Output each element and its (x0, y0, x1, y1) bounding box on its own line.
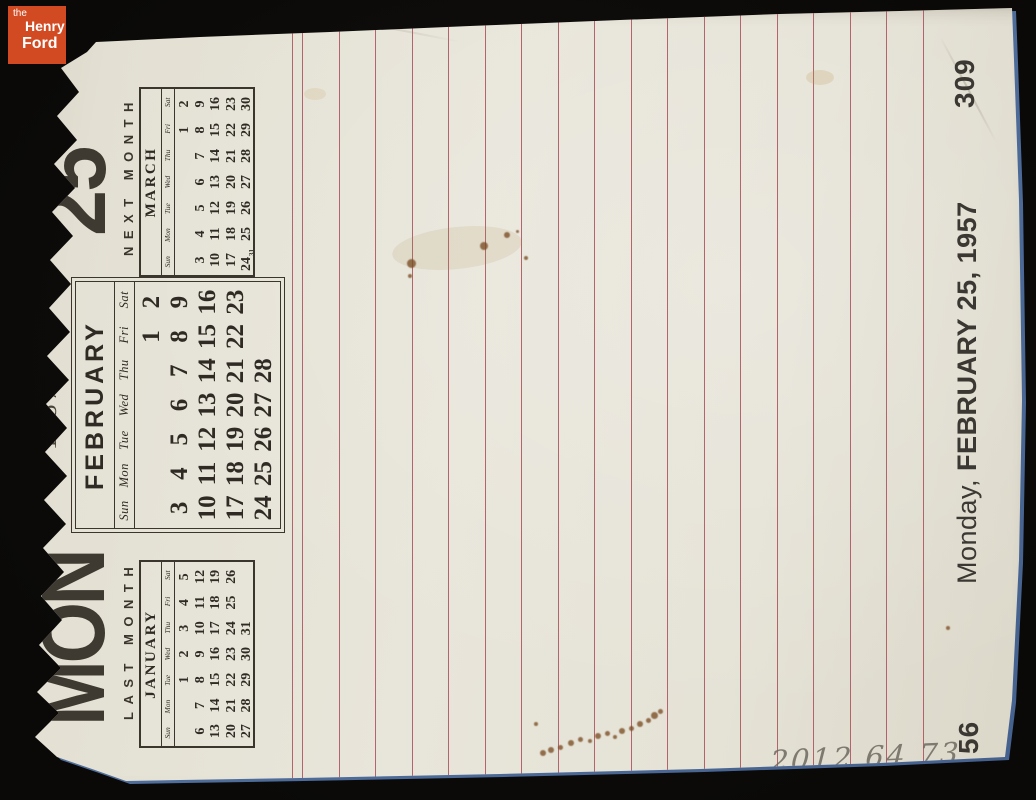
stain-speck (524, 256, 528, 260)
day-cell-overflow: 31 (248, 249, 255, 256)
day-cell: 21 (222, 354, 250, 388)
stain-speck (480, 242, 488, 250)
day-cell: 28 (239, 143, 255, 169)
month-title: JANUARY (141, 562, 161, 746)
weekday-header-row: SunMonTueWedThuFriSat (161, 562, 175, 746)
ruled-line (302, 0, 303, 800)
weekday-abbrev: Sun (115, 493, 134, 528)
day-cell: 1 (138, 319, 166, 353)
day-cell: 18 (222, 456, 250, 490)
day-cell: 27 (250, 388, 278, 422)
day-cell: 7 (193, 143, 209, 169)
day-cell (138, 354, 166, 388)
weekday-abbrev: Tue (162, 195, 174, 222)
day-number: 25 (33, 148, 117, 236)
weekday-abbrev: Sat (115, 282, 134, 317)
day-cell: 22 (222, 319, 250, 353)
day-cell: 13 (194, 388, 222, 422)
day-cell (250, 319, 278, 353)
day-cell: 14 (208, 143, 224, 169)
calendar-page-paper: MON LAST MONTH JANUARYSunMonTueWedThuFri… (0, 0, 1036, 800)
day-cell: 17 (208, 615, 224, 641)
day-cell: 23 (222, 285, 250, 319)
day-cell: 20 (224, 169, 240, 195)
day-cell: 7 (166, 354, 194, 388)
stain-speck (588, 739, 592, 743)
henry-ford-logo: the Henry Ford (8, 6, 66, 64)
day-cell: 23 (224, 641, 240, 667)
stain-speck (605, 731, 610, 736)
stain-speck (407, 259, 416, 268)
stain-speck (646, 718, 651, 723)
date-caption-weekday: Monday, (952, 479, 982, 584)
day-cell: 12 (193, 564, 209, 590)
calendar-header-block: MON LAST MONTH JANUARYSunMonTueWedThuFri… (35, 85, 290, 750)
ruled-line (412, 0, 413, 800)
day-cell: 29 (239, 667, 255, 693)
day-cell: 1 (177, 667, 193, 693)
day-cell: 28 (250, 354, 278, 388)
stain-speck (629, 726, 634, 731)
day-cell: 24 (224, 615, 240, 641)
day-cell: 16 (208, 641, 224, 667)
day-cell (239, 590, 255, 616)
day-cell (250, 285, 278, 319)
weekday-abbrev: Wed (115, 387, 134, 422)
day-cell: 22 (224, 117, 240, 143)
ruled-line (850, 0, 851, 800)
weekday-abbrev: Thu (115, 352, 134, 387)
year: 1957 (35, 384, 63, 450)
ruled-line (485, 0, 486, 800)
weekday-header-row: SunMonTueWedThuFriSat (161, 89, 175, 275)
day-cell: 15 (208, 667, 224, 693)
stain-speck (946, 626, 950, 630)
day-cell: 19 (224, 195, 240, 221)
day-grid: 1234567891011121314151617181920212223243… (175, 89, 255, 275)
day-cell: 24 (250, 491, 278, 525)
weekday-abbrev: Thu (162, 142, 174, 169)
stain-speck (568, 740, 574, 746)
ruled-line (667, 0, 668, 800)
day-cell (177, 195, 193, 221)
ruled-line (813, 0, 814, 800)
stain-speck (578, 737, 583, 742)
date-caption-date: FEBRUARY 25, 1957 (952, 201, 982, 471)
day-cell: 20 (224, 718, 240, 744)
month-title: MARCH (141, 89, 161, 275)
day-grid: 1234567891011121314151617181920212223242… (135, 282, 281, 528)
day-cell: 12 (208, 195, 224, 221)
day-cell (177, 693, 193, 719)
day-cell (239, 564, 255, 590)
day-cell: 19 (208, 564, 224, 590)
weekday-abbrev: Wed (162, 169, 174, 196)
weekday-abbrev: Mon (115, 458, 134, 493)
weekday-abbrev: Wed (162, 641, 174, 667)
day-cell: 2 (138, 285, 166, 319)
stain-speck (540, 750, 546, 756)
day-cell: 14 (208, 693, 224, 719)
day-cell: 17 (224, 247, 240, 273)
stain-speck (408, 274, 412, 278)
day-cell: 1 (177, 117, 193, 143)
day-cell: 8 (166, 319, 194, 353)
day-abbreviation: MON (31, 552, 117, 726)
ruled-line (521, 0, 522, 800)
day-cell: 19 (222, 422, 250, 456)
day-cell: 5 (193, 195, 209, 221)
day-cell: 25 (250, 456, 278, 490)
ruled-line (448, 0, 449, 800)
day-cell (177, 221, 193, 247)
date-caption: Monday,FEBRUARY 25, 1957 (948, 212, 990, 584)
day-cell: 2431 (239, 247, 255, 273)
stain-speck (558, 745, 563, 750)
day-cell (177, 247, 193, 273)
calendar-february: FEBRUARYSunMonTueWedThuFriSat12345678910… (71, 277, 285, 533)
day-cell: 21 (224, 693, 240, 719)
day-cell: 7 (193, 693, 209, 719)
weekday-header-row: SunMonTueWedThuFriSat (114, 282, 135, 528)
day-cell: 31 (239, 615, 255, 641)
weekday-abbrev: Tue (115, 423, 134, 458)
day-cell: 18 (208, 590, 224, 616)
day-cell: 8 (193, 117, 209, 143)
day-cell (138, 456, 166, 490)
day-cell: 25 (224, 590, 240, 616)
day-cell: 16 (208, 91, 224, 117)
accession-number: 2012.64.73 (769, 736, 962, 778)
weekday-abbrev: Sun (162, 720, 174, 746)
weekday-abbrev: Fri (162, 116, 174, 143)
day-cell: 13 (208, 718, 224, 744)
stain (806, 70, 834, 85)
ruled-line (886, 0, 887, 800)
day-cell: 5 (166, 422, 194, 456)
day-cell: 2 (177, 641, 193, 667)
day-cell: 13 (208, 169, 224, 195)
day-cell: 15 (208, 117, 224, 143)
day-cell (138, 388, 166, 422)
day-cell: 26 (239, 195, 255, 221)
ruled-line (923, 0, 924, 800)
ruled-line (339, 0, 340, 800)
ruled-line (777, 0, 778, 800)
logo-text-henry: Henry (25, 18, 65, 34)
weekday-abbrev: Fri (162, 588, 174, 614)
day-cell: 2 (177, 91, 193, 117)
day-cell (177, 169, 193, 195)
day-cell: 18 (224, 221, 240, 247)
day-cell: 29 (239, 117, 255, 143)
weekday-abbrev: Sat (162, 89, 174, 116)
stain-speck (516, 230, 519, 233)
ruled-line (375, 0, 376, 800)
ruled-line (631, 0, 632, 800)
weekday-abbrev: Sun (162, 248, 174, 275)
day-cell (177, 718, 193, 744)
day-cell: 4 (193, 221, 209, 247)
day-cell: 10 (193, 615, 209, 641)
day-cell: 17 (222, 491, 250, 525)
ruled-line (704, 0, 705, 800)
day-cell (138, 422, 166, 456)
month-title: FEBRUARY (76, 282, 114, 528)
ruled-line (558, 0, 559, 800)
day-cell: 26 (250, 422, 278, 456)
next-month-label: NEXT MONTH (121, 95, 136, 256)
day-cell: 6 (193, 718, 209, 744)
weekday-abbrev: Mon (162, 222, 174, 249)
day-cell: 6 (166, 388, 194, 422)
photo-stage: the Henry Ford MON LAST MONTH JANUARYSun… (0, 0, 1036, 800)
day-cell: 9 (193, 641, 209, 667)
day-cell: 3 (193, 247, 209, 273)
stain-speck (658, 709, 663, 714)
weekday-abbrev: Tue (162, 667, 174, 693)
day-cell: 10 (208, 247, 224, 273)
top-page-number: 309 (948, 50, 984, 108)
day-cell: 9 (193, 91, 209, 117)
day-cell: 14 (194, 354, 222, 388)
day-cell: 4 (166, 456, 194, 490)
day-cell: 3 (177, 615, 193, 641)
last-month-label: LAST MONTH (121, 560, 136, 720)
day-cell: 27 (239, 169, 255, 195)
day-cell: 4 (177, 590, 193, 616)
day-cell: 30 (239, 641, 255, 667)
day-cell: 12 (194, 422, 222, 456)
day-grid: 1234567891011121314151617181920212223242… (175, 562, 255, 746)
day-cell: 28 (239, 693, 255, 719)
stain-speck (613, 735, 617, 739)
day-cell: 6 (193, 169, 209, 195)
day-cell: 10 (194, 491, 222, 525)
weekday-abbrev: Mon (162, 693, 174, 719)
day-cell: 11 (193, 590, 209, 616)
day-cell: 16 (194, 285, 222, 319)
day-cell: 20 (222, 388, 250, 422)
mini-calendar-january: JANUARYSunMonTueWedThuFriSat123456789101… (139, 560, 255, 748)
day-cell: 27 (239, 718, 255, 744)
day-cell (138, 491, 166, 525)
weekday-abbrev: Sat (162, 562, 174, 588)
stain-speck (548, 747, 554, 753)
day-cell: 8 (193, 667, 209, 693)
mini-calendar-march: MARCHSunMonTueWedThuFriSat12345678910111… (139, 87, 255, 277)
day-cell: 21 (224, 143, 240, 169)
stain-speck (504, 232, 510, 238)
stain-speck (534, 722, 538, 726)
day-cell: 23 (224, 91, 240, 117)
day-cell: 11 (208, 221, 224, 247)
day-cell: 11 (194, 456, 222, 490)
weekday-abbrev: Thu (162, 615, 174, 641)
stain-speck (651, 712, 658, 719)
day-cell: 3 (166, 491, 194, 525)
day-cell: 5 (177, 564, 193, 590)
day-cell: 9 (166, 285, 194, 319)
day-cell: 30 (239, 91, 255, 117)
calendar-february-inner-border: FEBRUARYSunMonTueWedThuFriSat12345678910… (75, 281, 281, 529)
stain (304, 88, 326, 100)
stain-speck (619, 728, 625, 734)
stain-speck (637, 721, 643, 727)
day-cell: 26 (224, 564, 240, 590)
day-cell: 15 (194, 319, 222, 353)
ruled-line (292, 0, 293, 800)
day-cell (177, 143, 193, 169)
stain-speck (595, 733, 601, 739)
day-cell: 25 (239, 221, 255, 247)
day-cell: 22 (224, 667, 240, 693)
ruled-line (740, 0, 741, 800)
ruled-line (594, 0, 595, 800)
crease (202, 0, 463, 43)
weekday-abbrev: Fri (115, 317, 134, 352)
logo-text-ford: Ford (22, 35, 58, 53)
